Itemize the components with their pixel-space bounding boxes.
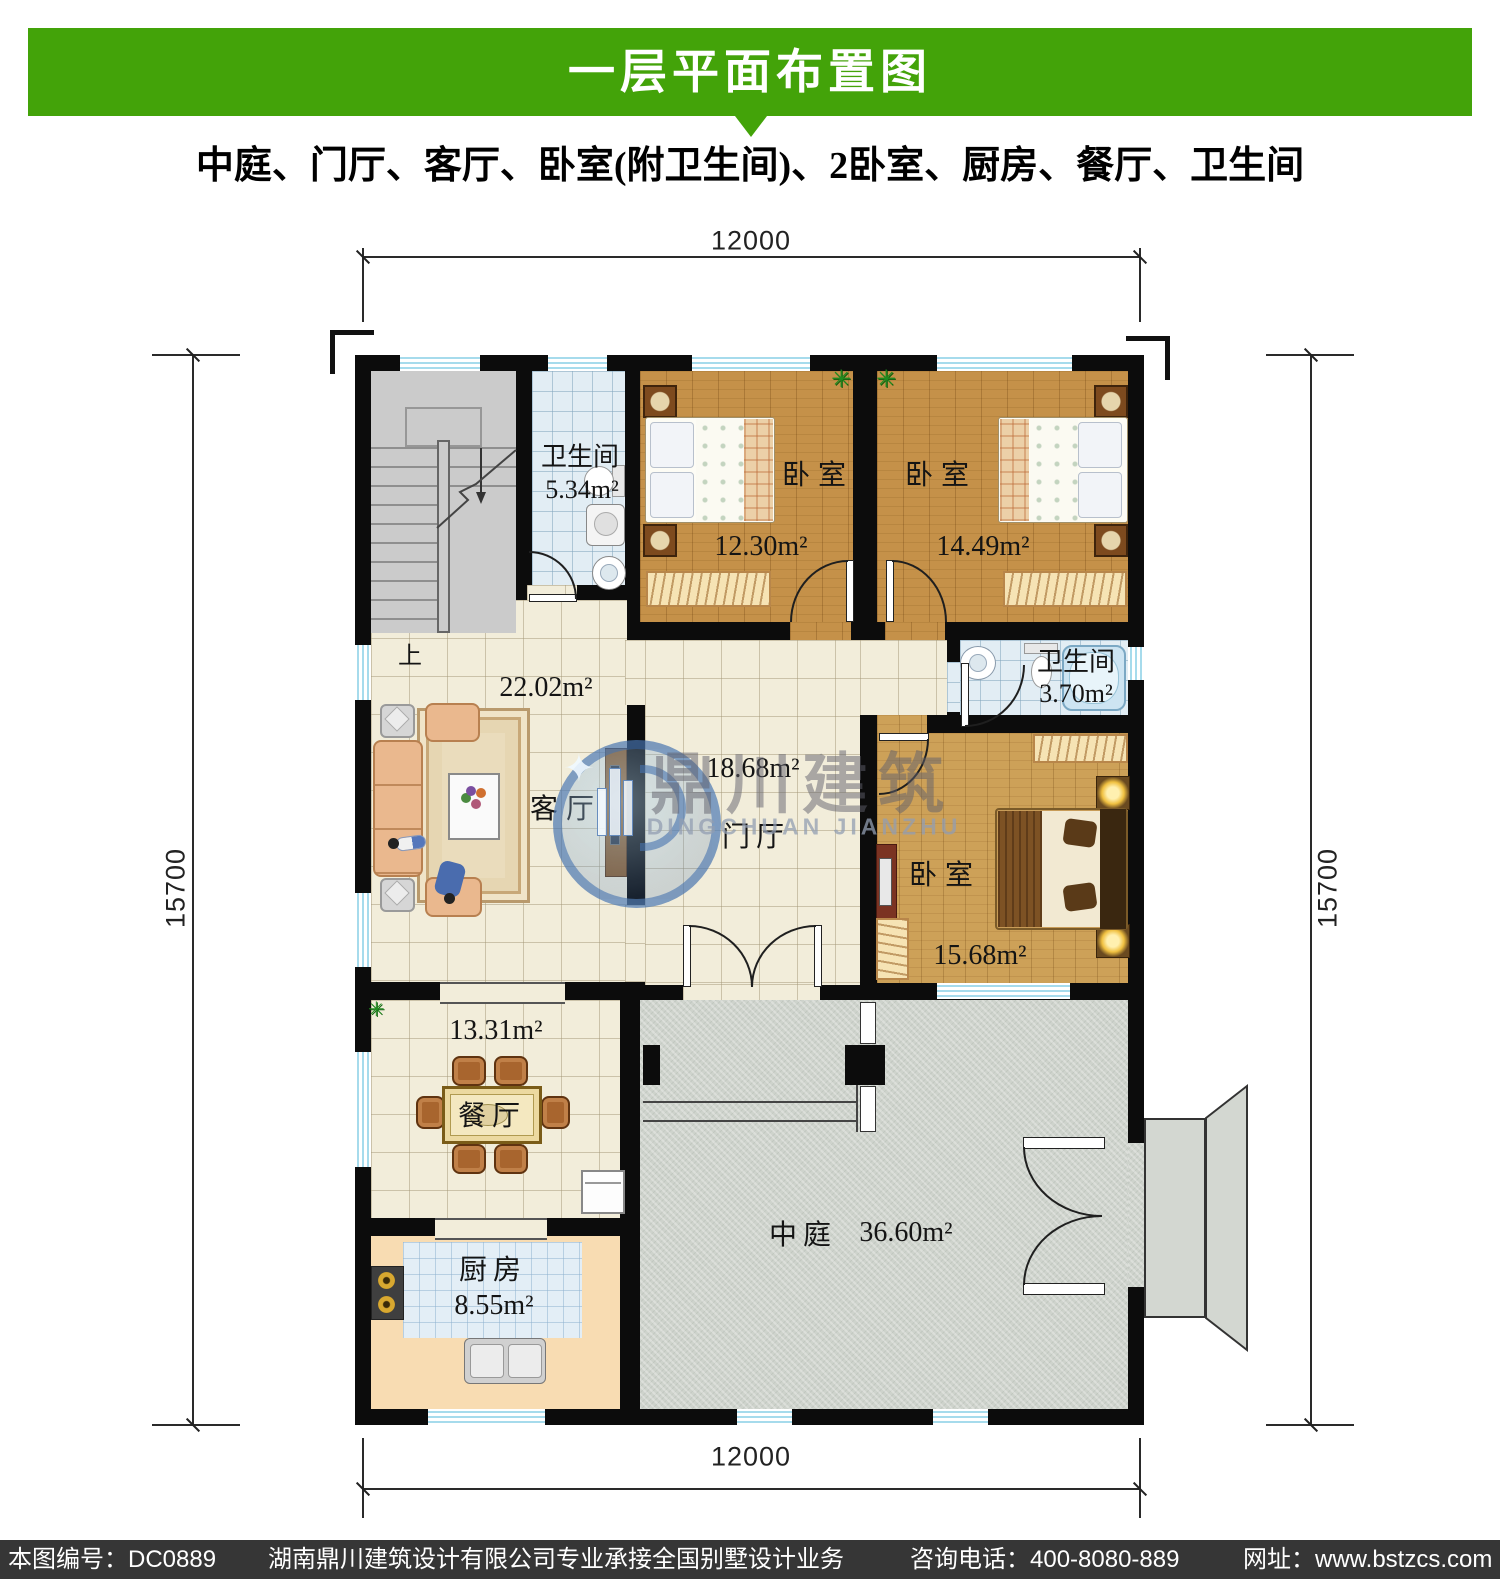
dim-left-label: 15700 bbox=[161, 848, 192, 928]
corridor-floor bbox=[860, 640, 947, 715]
plant-icon: ✳ bbox=[831, 368, 851, 392]
window bbox=[428, 1409, 545, 1425]
dim-bottom-line bbox=[363, 1488, 1141, 1490]
stair-direction-arrow bbox=[480, 448, 482, 494]
window bbox=[937, 983, 1070, 999]
dining-chair bbox=[452, 1056, 486, 1086]
dim-left-line bbox=[192, 355, 194, 1425]
nightstand bbox=[643, 385, 677, 418]
bed-blanket bbox=[744, 419, 773, 521]
eave-corner-mark bbox=[1126, 336, 1170, 341]
window bbox=[355, 1052, 371, 1167]
sink-basin-icon bbox=[508, 1344, 542, 1378]
tv-icon bbox=[610, 765, 620, 845]
hall-gap-floor bbox=[625, 640, 645, 705]
porch-column bbox=[845, 1045, 885, 1085]
dining-kitchen-opening bbox=[435, 1218, 547, 1240]
eave-corner-mark bbox=[330, 330, 335, 374]
stair-treads bbox=[450, 447, 516, 499]
footer-website: 网址：www.bstzcs.com bbox=[1243, 1540, 1492, 1579]
pillow bbox=[650, 472, 694, 518]
bed-sheet bbox=[1030, 419, 1078, 521]
dim-bottom-ext-left bbox=[362, 1438, 364, 1518]
living-dining-opening bbox=[440, 982, 565, 1004]
tv-icon bbox=[879, 858, 892, 906]
refrigerator-icon bbox=[581, 1170, 625, 1214]
eave-corner-mark bbox=[1165, 336, 1170, 380]
person-figure bbox=[388, 838, 399, 849]
wardrobe bbox=[1033, 734, 1128, 763]
room-label-bedroom-left-area: 12.30m² bbox=[714, 531, 807, 563]
dining-chair bbox=[494, 1144, 528, 1174]
flower-decor-icon bbox=[466, 786, 476, 796]
floor-plan-page: 一层平面布置图 中庭、门厅、客厅、卧室(附卫生间)、2卧室、厨房、餐厅、卫生间 … bbox=[0, 0, 1500, 1579]
dim-top-label: 12000 bbox=[711, 226, 791, 257]
room-label-dining-name: 餐厅 bbox=[458, 1094, 526, 1134]
porch-channel bbox=[860, 1086, 876, 1132]
sink-basin-icon bbox=[470, 1344, 504, 1378]
bedroom-right-door-opening bbox=[885, 622, 945, 640]
pillow bbox=[1078, 472, 1122, 518]
room-label-bath-right-area: 3.70m² bbox=[1039, 679, 1113, 709]
room-label-foyer-area: 18.68m² bbox=[706, 753, 799, 785]
window bbox=[355, 645, 371, 700]
gate-opening bbox=[1128, 1143, 1144, 1287]
bed-headboard bbox=[1100, 809, 1126, 929]
dim-right-label: 15700 bbox=[1313, 848, 1344, 928]
bed-blanket bbox=[998, 811, 1042, 927]
room-label-bath-right-name: 卫生间 bbox=[1037, 642, 1115, 679]
dining-chair bbox=[416, 1096, 445, 1129]
bed-sheet bbox=[696, 419, 744, 521]
room-label-courtyard-name: 中庭 bbox=[769, 1213, 837, 1253]
room-label-bedroom-right-name: 卧室 bbox=[905, 453, 977, 493]
room-label-living-name: 客厅 bbox=[530, 787, 602, 827]
dining-chair bbox=[452, 1144, 486, 1174]
coffee-table bbox=[448, 773, 500, 840]
dim-bottom-ext-right bbox=[1139, 1438, 1141, 1518]
hall-gap-floor bbox=[625, 905, 645, 982]
room-list-subtitle: 中庭、门厅、客厅、卧室(附卫生间)、2卧室、厨房、餐厅、卫生间 bbox=[0, 142, 1500, 190]
room-label-bath-top-name: 卫生间 bbox=[541, 437, 619, 474]
stair-up-label: 上 bbox=[398, 636, 422, 671]
stove-burner-icon bbox=[378, 1296, 395, 1313]
plant-icon: ✳ bbox=[368, 1000, 385, 1020]
nightstand bbox=[1094, 385, 1128, 418]
pillow bbox=[1062, 818, 1097, 848]
porch-step-line bbox=[856, 1085, 858, 1132]
footer-phone: 咨询电话：400-8080-889 bbox=[910, 1540, 1179, 1579]
stair-railing bbox=[437, 440, 450, 633]
footer-bar: 本图编号：DC0889 湖南鼎川建筑设计有限公司专业承接全国别墅设计业务 咨询电… bbox=[0, 1540, 1500, 1579]
wardrobe bbox=[646, 571, 771, 607]
foyer-floor bbox=[645, 640, 860, 985]
pillow bbox=[1062, 882, 1097, 912]
room-label-bedroom-left-name: 卧室 bbox=[782, 453, 854, 493]
dining-chair bbox=[494, 1056, 528, 1086]
gate-canopy bbox=[1144, 1118, 1206, 1318]
window bbox=[400, 355, 480, 371]
room-label-kitchen-area: 8.55m² bbox=[454, 1290, 533, 1322]
porch-step-line bbox=[643, 1101, 858, 1103]
loveseat bbox=[425, 703, 480, 742]
plant-icon: ✳ bbox=[876, 368, 896, 392]
stair-treads bbox=[371, 447, 437, 633]
porch-channel bbox=[860, 1002, 876, 1044]
page-title: 一层平面布置图 bbox=[0, 28, 1500, 116]
window bbox=[937, 355, 1072, 371]
dim-bottom-label: 12000 bbox=[711, 1442, 791, 1473]
room-label-dining-area: 13.31m² bbox=[449, 1015, 542, 1047]
window bbox=[548, 355, 607, 371]
room-label-foyer-name: 门厅 bbox=[722, 815, 790, 855]
window bbox=[1128, 647, 1144, 680]
nightstand bbox=[1094, 524, 1128, 557]
window bbox=[692, 355, 810, 371]
window bbox=[737, 1409, 792, 1425]
wardrobe bbox=[876, 918, 909, 980]
bedroom-master-door-opening bbox=[877, 715, 927, 733]
window bbox=[355, 893, 371, 967]
eave-corner-mark bbox=[330, 330, 374, 335]
washer-drum-icon bbox=[594, 512, 618, 536]
pillow bbox=[1078, 422, 1122, 468]
room-label-bedroom-right-area: 14.49m² bbox=[936, 531, 1029, 563]
footer-company: 湖南鼎川建筑设计有限公司专业承接全国别墅设计业务 bbox=[268, 1540, 844, 1579]
tv-partition-wall bbox=[627, 705, 645, 905]
refrigerator-icon bbox=[585, 1182, 621, 1184]
nightstand bbox=[643, 524, 677, 557]
bath-right-door-opening bbox=[947, 662, 960, 712]
stove-burner-icon bbox=[378, 1272, 395, 1289]
footer-drawing-no: 本图编号：DC0889 bbox=[8, 1540, 216, 1579]
wardrobe bbox=[1003, 571, 1127, 607]
room-label-bath-top-area: 5.34m² bbox=[545, 475, 619, 505]
room-label-courtyard-area: 36.60m² bbox=[859, 1217, 952, 1249]
porch-column bbox=[643, 1045, 660, 1085]
room-label-kitchen-name: 厨房 bbox=[459, 1248, 527, 1288]
dining-chair bbox=[541, 1096, 570, 1129]
room-label-bedroom-master-name: 卧室 bbox=[909, 853, 981, 893]
window bbox=[933, 1409, 988, 1425]
sink-basin-icon bbox=[600, 564, 618, 582]
person-figure bbox=[444, 893, 455, 904]
sofa bbox=[373, 740, 423, 877]
room-label-bedroom-master-area: 15.68m² bbox=[933, 940, 1026, 972]
header-pointer-icon bbox=[735, 116, 767, 137]
pillow bbox=[650, 422, 694, 468]
bed-blanket bbox=[1000, 419, 1029, 521]
porch-step-line bbox=[643, 1120, 858, 1122]
room-label-living-area: 22.02m² bbox=[499, 672, 592, 704]
bedside-lamp-icon bbox=[1096, 776, 1130, 810]
bedroom-left-door-opening bbox=[790, 622, 851, 640]
